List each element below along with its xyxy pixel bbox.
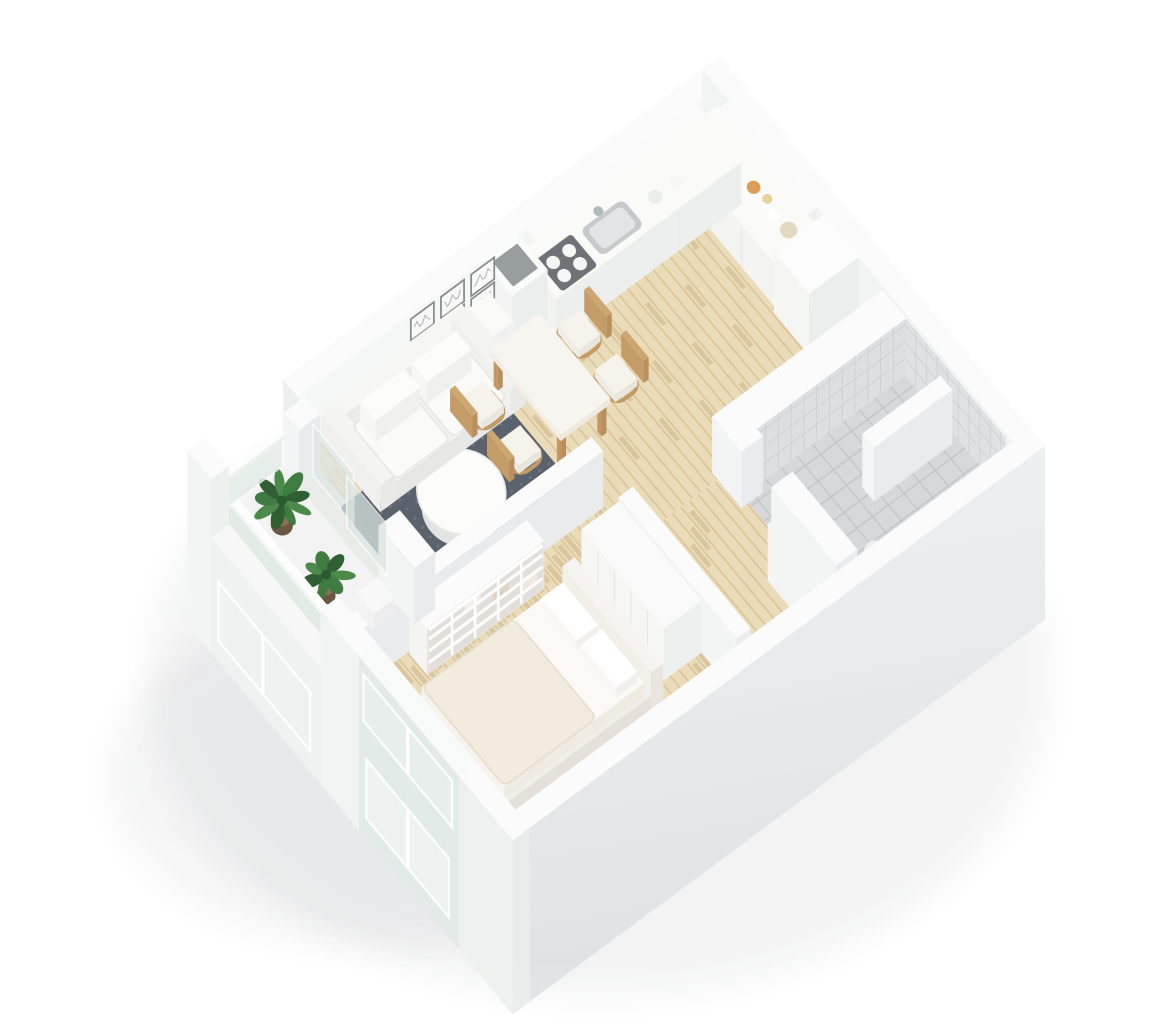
floorplan-3d-render	[40, 16, 1170, 1018]
floorplan-svg	[40, 16, 1170, 1018]
